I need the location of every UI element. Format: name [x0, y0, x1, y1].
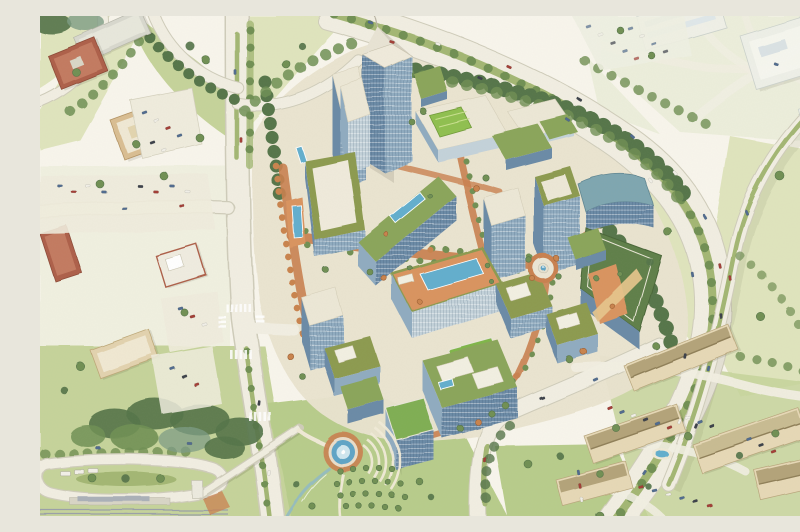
paper-grain — [40, 16, 800, 516]
aerial-rendering: Watercolor aerial rendering of a mixed-u… — [40, 16, 800, 516]
